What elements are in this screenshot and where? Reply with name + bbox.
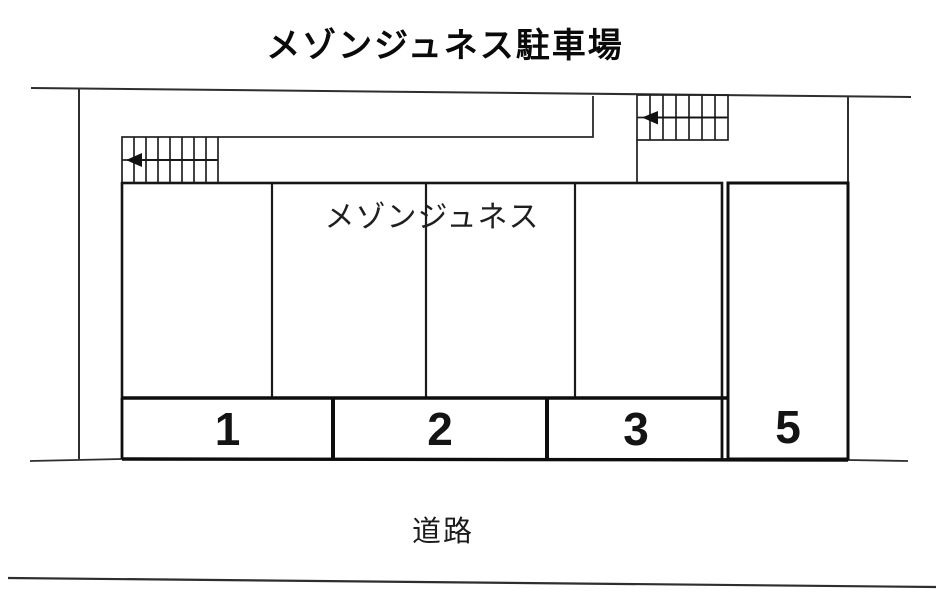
curb-line-left [30,459,122,461]
parking-space-3-label: 3 [547,402,725,456]
parking-space-1-label: 1 [122,402,333,456]
curb-line-right [848,460,908,461]
parking-space-2-label: 2 [333,402,547,456]
road-label: 道路 [0,510,886,548]
parking-space-5-label: 5 [728,400,848,454]
page-title: メゾンジュネス駐車場 [0,20,890,64]
left-staircase-arrow-icon [126,153,217,167]
boundary-bottom-line [8,578,936,587]
boundary-top-line [31,88,911,97]
building-label: メゾンジュネス [292,194,572,234]
walkway-line [218,96,593,137]
parking-lot-diagram: メゾンジュネス駐車場 メゾンジュネス 1 2 3 5 道路 [0,0,943,607]
